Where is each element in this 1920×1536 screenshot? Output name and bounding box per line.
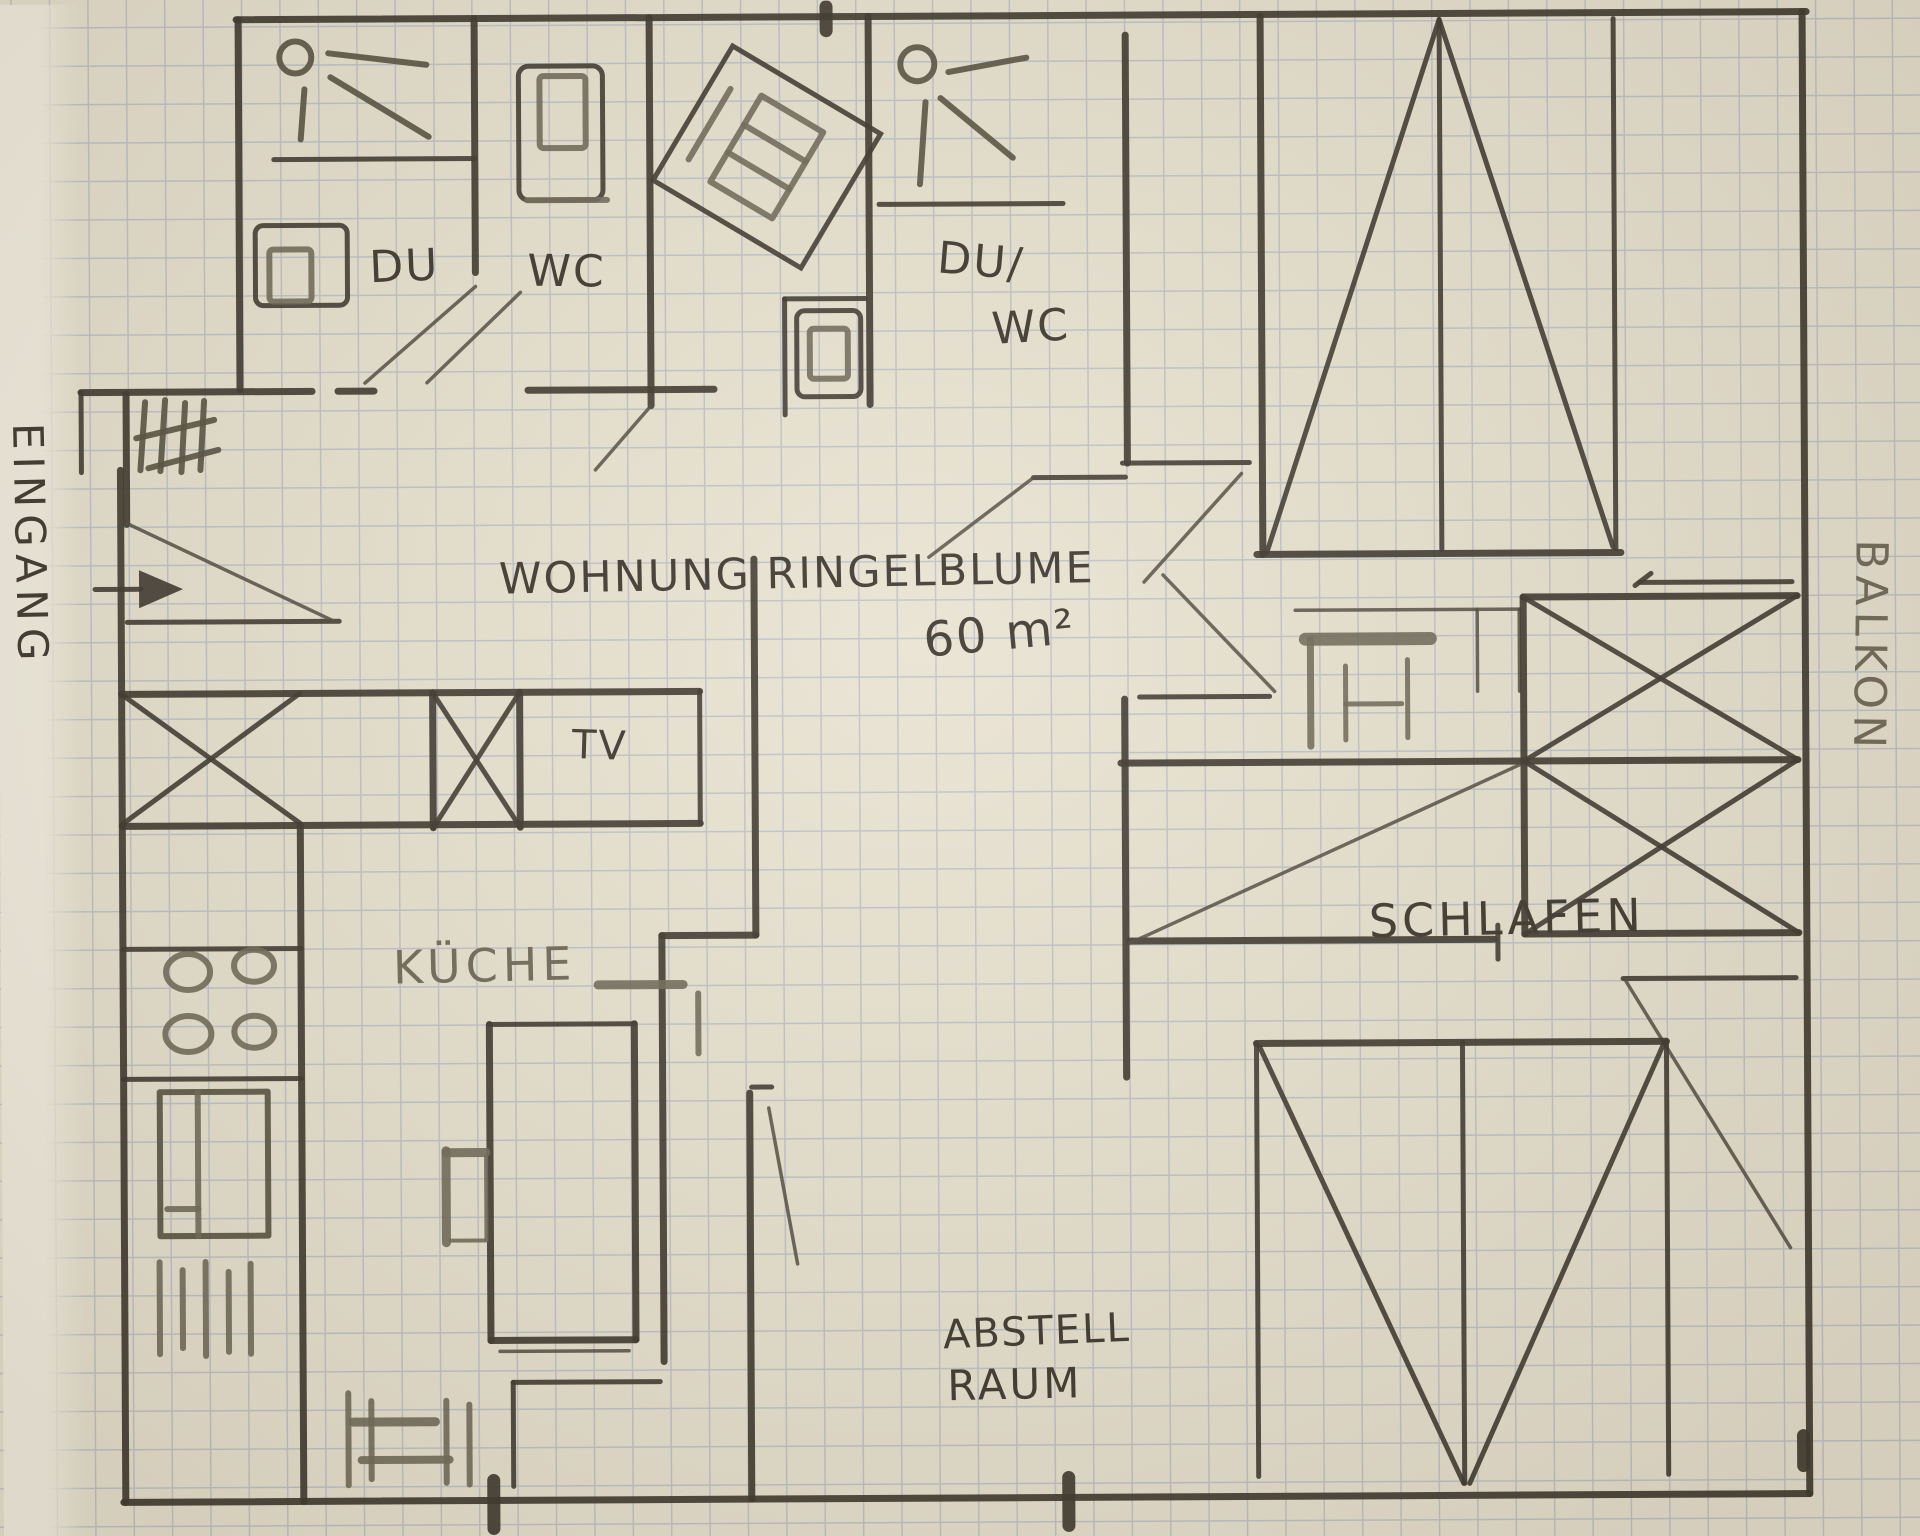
door-swing-icon — [595, 406, 651, 470]
toilet-icon — [518, 66, 607, 200]
floor-plan-drawing — [0, 0, 1920, 1536]
desk-icon — [1295, 609, 1520, 746]
shower-icon — [279, 41, 429, 140]
stove-icon — [165, 950, 275, 1053]
room-label-abstell-line1: ABSTELL — [942, 1308, 1131, 1356]
tv-board-icon — [433, 692, 521, 827]
kitchen-hatch-icon — [160, 1262, 251, 1356]
fridge-icon — [122, 693, 301, 824]
floor-plan-photo: EINGANG DU WC DU/ WC WOHNUNG RINGELBLUME… — [0, 0, 1920, 1536]
bathroom-left-walls — [238, 17, 714, 407]
plan-area: 60 m² — [921, 603, 1077, 665]
door-swing-icon — [1163, 574, 1275, 692]
room-label-balkon: BALKON — [1846, 539, 1893, 754]
hall-walls — [657, 33, 1527, 1362]
room-label-eingang: EINGANG — [6, 422, 54, 667]
room-label-schlafen: SCHLAFEN — [1368, 892, 1645, 944]
chair-icon — [446, 1150, 486, 1242]
room-label-du: DU — [369, 244, 441, 291]
door-swing-icon — [364, 287, 476, 384]
room-label-du-wc-line1: DU/ — [936, 236, 1026, 287]
shower-icon — [900, 47, 1027, 185]
room-label-kueche: KÜCHE — [393, 940, 577, 990]
table-and-bottom-walls — [489, 1024, 660, 1487]
door-swing-icon — [1143, 474, 1242, 583]
door-swing-icon — [427, 292, 521, 382]
sink-icon — [160, 1092, 269, 1237]
room-label-du-wc-line2: WC — [990, 303, 1071, 351]
door-swing-icon — [1626, 981, 1790, 1249]
washing-machine-icon — [653, 46, 881, 268]
entry-arrow-icon — [95, 570, 183, 608]
bench-icon — [348, 1393, 469, 1486]
kitchen-table-icon — [598, 984, 698, 1054]
plan-title: WOHNUNG RINGELBLUME — [499, 547, 1095, 601]
storage-room-walls — [750, 1087, 774, 1499]
door-swing-icon — [129, 523, 333, 621]
wardrobe-triangle-icon — [1254, 15, 1621, 555]
graph-paper-sheet: EINGANG DU WC DU/ WC WOHNUNG RINGELBLUME… — [0, 0, 1920, 1536]
room-label-abstell-line2: RAUM — [947, 1362, 1083, 1407]
toilet-icon — [797, 311, 861, 397]
entry-stairs-hatch-icon — [136, 400, 218, 472]
furniture-label-tv: TV — [571, 725, 628, 767]
wardrobe-triangle-icon — [1256, 1041, 1668, 1484]
bed-icon — [1523, 596, 1799, 934]
toilet-icon — [255, 225, 347, 305]
room-label-wc: WC — [527, 250, 606, 295]
door-swing-icon — [769, 1108, 798, 1264]
